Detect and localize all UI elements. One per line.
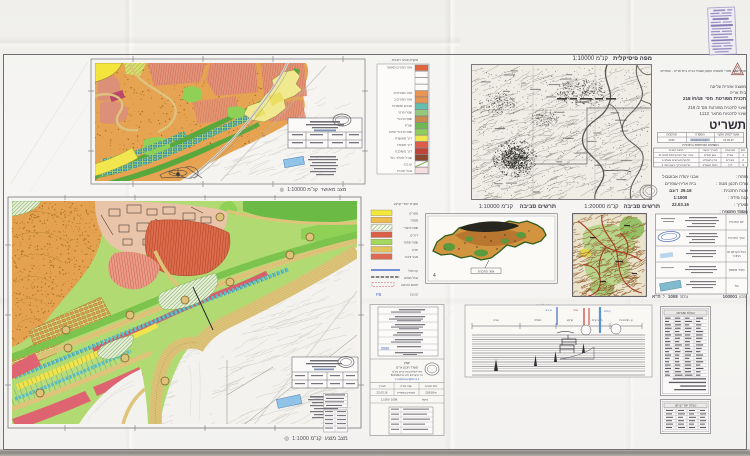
svg-text:ועד: ועד bbox=[734, 284, 739, 288]
svg-text:מקרא יעודי קרקע: מקרא יעודי קרקע bbox=[394, 202, 419, 206]
svg-text:מהות השינוי: מהות השינוי bbox=[669, 148, 684, 152]
svg-text:גרסה: גרסה bbox=[422, 398, 429, 402]
svg-text:גבול תכנית: גבול תכנית bbox=[397, 169, 412, 173]
svg-text:מרץ תשס"א: מרץ תשס"א bbox=[703, 158, 718, 162]
svg-text:כסלו תשס"ב: כסלו תשס"ב bbox=[702, 163, 718, 167]
svg-text:15.09.97: 15.09.97 bbox=[723, 138, 734, 142]
svg-text:מגורים: מגורים bbox=[726, 158, 734, 162]
svg-text:שטח ציבורי: שטח ציבורי bbox=[403, 226, 418, 230]
svg-text:שצ"פ: שצ"פ bbox=[727, 153, 733, 157]
svg-text:מקרא צבעי תכנית: מקרא צבעי תכנית bbox=[392, 58, 419, 62]
svg-text:שטח ציבורי: שטח ציבורי bbox=[397, 117, 413, 121]
svg-text:דרכים: דרכים bbox=[410, 233, 418, 237]
svg-text:דרך מוצעת: דרך מוצעת bbox=[397, 143, 412, 147]
svg-text:יזם התכנית: יזם התכנית bbox=[729, 220, 744, 224]
svg-text:כמצויין בתשריט: כמצויין בתשריט bbox=[397, 390, 416, 394]
svg-text:קו כחול: קו כחול bbox=[408, 269, 418, 273]
svg-text:מסחר: מסחר bbox=[410, 219, 418, 223]
svg-text:דרך: דרך bbox=[728, 163, 733, 167]
svg-text:אדריכלות ובניין ערים בע"מ: אדריכלות ובניין ערים בע"מ bbox=[392, 370, 422, 374]
svg-text:קו מים: קו מים bbox=[604, 310, 611, 313]
svg-text:מבני ציבור: מבני ציבור bbox=[404, 255, 418, 259]
svg-text:החוכר: החוכר bbox=[732, 254, 740, 258]
svg-text:אזור מגורים ב: אזור מגורים ב bbox=[394, 98, 412, 102]
svg-text:אושר למתן תוקף: אושר למתן תוקף bbox=[718, 133, 740, 137]
svg-text:מס' תכנית: מס' תכנית bbox=[425, 384, 437, 388]
svg-text:1:1000 1008: 1:1000 1008 bbox=[381, 398, 398, 402]
svg-text:מפלס: מפלס bbox=[535, 318, 542, 322]
svg-text:קו ביוב: קו ביוב bbox=[545, 309, 552, 312]
svg-text:מבנים ומוסדות: מבנים ומוסדות bbox=[392, 104, 412, 108]
svg-text:קנה מידה: קנה מידה bbox=[400, 384, 412, 388]
svg-text:22.03.16: 22.03.16 bbox=[377, 390, 388, 394]
svg-text:רח' הרצל 23 ת"א טל 5213344: רח' הרצל 23 ת"א טל 5213344 bbox=[391, 373, 424, 377]
svg-text:מגורים: מגורים bbox=[409, 211, 418, 215]
svg-text:218/ח/18: 218/ח/18 bbox=[425, 390, 436, 394]
svg-text:טבלת שטחים: טבלת שטחים bbox=[676, 311, 694, 315]
svg-text:חלוקת מגרשים בשלב ב: חלוקת מגרשים בשלב ב bbox=[662, 158, 691, 162]
svg-text:מודד מוסמך: מודד מוסמך bbox=[729, 268, 745, 272]
svg-text:דרך מאושרת: דרך מאושרת bbox=[395, 137, 412, 141]
svg-text:גובה: גובה bbox=[493, 318, 499, 322]
svg-text:עמוד: עמוד bbox=[573, 309, 579, 312]
svg-text:4536: 4536 bbox=[669, 138, 676, 142]
svg-text:שצ"פ: שצ"פ bbox=[405, 124, 413, 128]
svg-text:אזור מגורים מאושר: אזור מגורים מאושר bbox=[387, 66, 412, 70]
svg-text:טבלת יעודי קרקע: טבלת יעודי קרקע bbox=[675, 403, 697, 407]
svg-text:ק. מתוכננת: ק. מתוכננת bbox=[619, 318, 633, 322]
svg-text:שטח פרטי: שטח פרטי bbox=[398, 111, 413, 115]
svg-text:תחום הרחבה: תחום הרחבה bbox=[401, 283, 418, 287]
svg-text:משרד תכנון ערים: משרד תכנון ערים bbox=[396, 366, 418, 370]
svg-text:הרחבת דרך גישה מס' 2: הרחבת דרך גישה מס' 2 bbox=[662, 163, 691, 167]
svg-text:טבלת חתימות: טבלת חתימות bbox=[725, 209, 746, 213]
svg-text:קרקע: קרקע bbox=[567, 318, 574, 322]
svg-text:FB: FB bbox=[376, 292, 382, 297]
svg-text:אוק תש"ס: אוק תש"ס bbox=[704, 153, 716, 157]
svg-text:e-mail:keren@tik.co.il: e-mail:keren@tik.co.il bbox=[395, 378, 419, 381]
svg-text:עורך התכנית: עורך התכנית bbox=[728, 236, 745, 240]
svg-text:מס': מס' bbox=[741, 148, 746, 152]
svg-text:שינוי יעוד מגרש 104 למגורים: שינוי יעוד מגרש 104 למגורים bbox=[659, 153, 694, 157]
svg-text:סוג שינוי: סוג שינוי bbox=[725, 148, 735, 152]
svg-text:קרן: קרן bbox=[404, 361, 410, 365]
svg-text:פורסמה: פורסמה bbox=[666, 133, 676, 137]
svg-text:קו בנין: קו בנין bbox=[410, 293, 418, 297]
svg-text:גבול מגרש: גבול מגרש bbox=[404, 276, 418, 280]
svg-text:שטח ציבורי פתוח: שטח ציבורי פתוח bbox=[389, 130, 413, 134]
svg-text:תאריך אישור: תאריך אישור bbox=[702, 148, 717, 152]
svg-text:הופקדה: הופקדה bbox=[695, 133, 705, 137]
svg-text:אזור מגורים א: אזור מגורים א bbox=[394, 91, 412, 95]
svg-text:חניה: חניה bbox=[412, 248, 418, 252]
svg-text:קו בנין: קו בנין bbox=[404, 163, 413, 167]
svg-text:אזור התכנית: אזור התכנית bbox=[478, 269, 495, 273]
svg-text:דרך משולבת: דרך משולבת bbox=[395, 150, 412, 154]
svg-text:שביל להולכי רגל: שביל להולכי רגל bbox=[390, 156, 412, 160]
svg-text:שטח פתוח: שטח פתוח bbox=[404, 241, 419, 245]
svg-text:ילקוט פרסומים: ילקוט פרסומים bbox=[692, 138, 709, 142]
svg-text:תאריך: תאריך bbox=[378, 384, 385, 388]
svg-text:4: 4 bbox=[433, 273, 436, 279]
